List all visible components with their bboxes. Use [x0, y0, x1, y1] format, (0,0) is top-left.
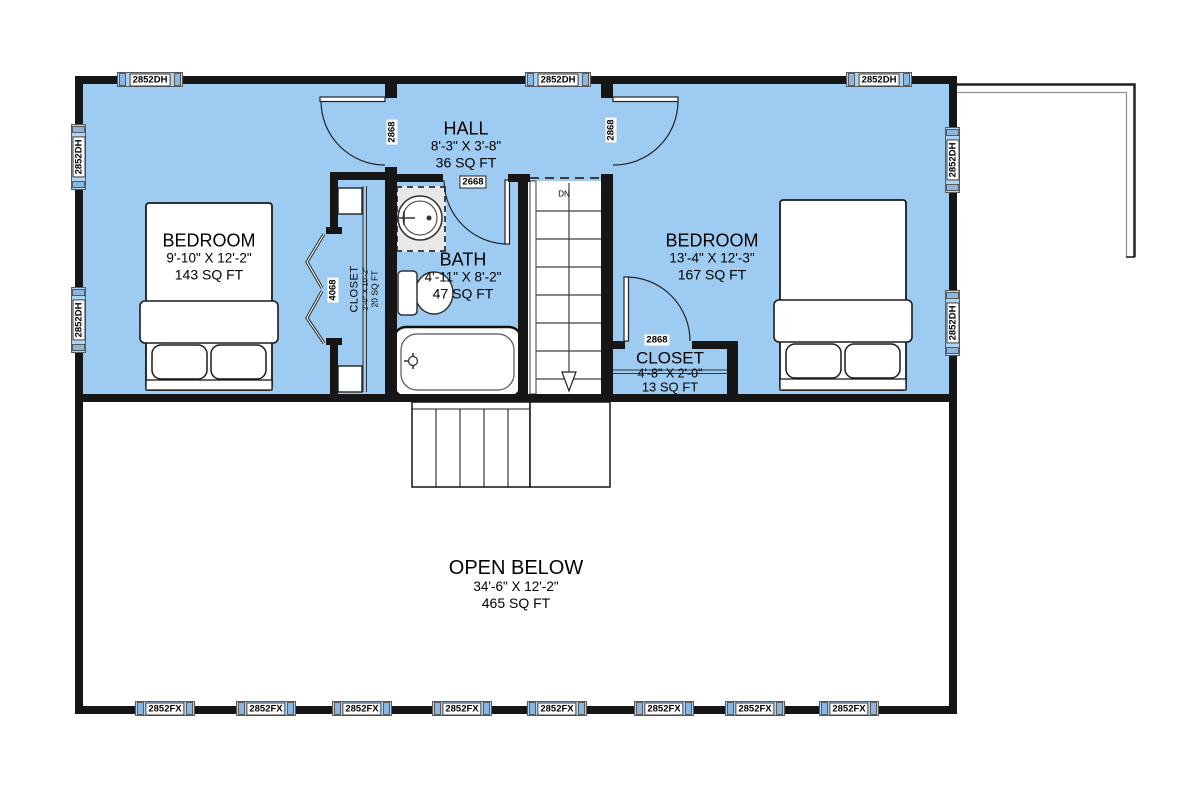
- room-label-bedroom-left: BEDROOM 9'-10" X 12'-2" 143 SQ FT: [162, 232, 255, 283]
- room-area: 36 SQ FT: [431, 155, 501, 171]
- room-area: 13 SQ FT: [636, 381, 704, 395]
- room-dims: 34'-6" X 12'-2": [449, 579, 583, 595]
- room-area: 143 SQ FT: [162, 267, 255, 283]
- room-label-bath: BATH 4'-11" X 8'-2" 47 SQ FT: [425, 251, 502, 302]
- room-name: HALL: [431, 120, 501, 139]
- room-dims: 9'-10" X 12'-2": [162, 251, 255, 267]
- room-name: BATH: [425, 251, 502, 270]
- room-label-bedroom-right: BEDROOM 13'-4" X 12'-3" 167 SQ FT: [665, 232, 758, 283]
- room-dims: 4'-11" X 8'-2": [425, 270, 502, 286]
- room-labels-layer: BEDROOM 9'-10" X 12'-2" 143 SQ FT BEDROO…: [0, 0, 1200, 798]
- room-area: 47 SQ FT: [425, 286, 502, 302]
- room-name: BEDROOM: [665, 232, 758, 251]
- room-label-open-below: OPEN BELOW 34'-6" X 12'-2" 465 SQ FT: [449, 557, 583, 611]
- room-dims: 2'-0" X 10'-2": [361, 265, 370, 312]
- room-area: 465 SQ FT: [449, 595, 583, 611]
- room-label-closet-left: CLOSET 2'-0" X 10'-2" 20 SQ FT: [349, 265, 380, 312]
- room-area: 20 SQ FT: [370, 265, 380, 312]
- floor-plan-canvas: 2852DH2852DH2852DH2852FX2852FX2852FX2852…: [0, 0, 1200, 798]
- room-dims: 13'-4" X 12'-3": [665, 251, 758, 267]
- room-label-closet-right: CLOSET 4'-8" X 2'-0" 13 SQ FT: [636, 350, 704, 395]
- room-area: 167 SQ FT: [665, 267, 758, 283]
- room-name: CLOSET: [349, 265, 361, 312]
- room-name: CLOSET: [636, 350, 704, 368]
- room-name: BEDROOM: [162, 232, 255, 251]
- room-label-hall: HALL 8'-3" X 3'-8" 36 SQ FT: [431, 120, 501, 171]
- room-name: OPEN BELOW: [449, 557, 583, 579]
- room-dims: 8'-3" X 3'-8": [431, 139, 501, 155]
